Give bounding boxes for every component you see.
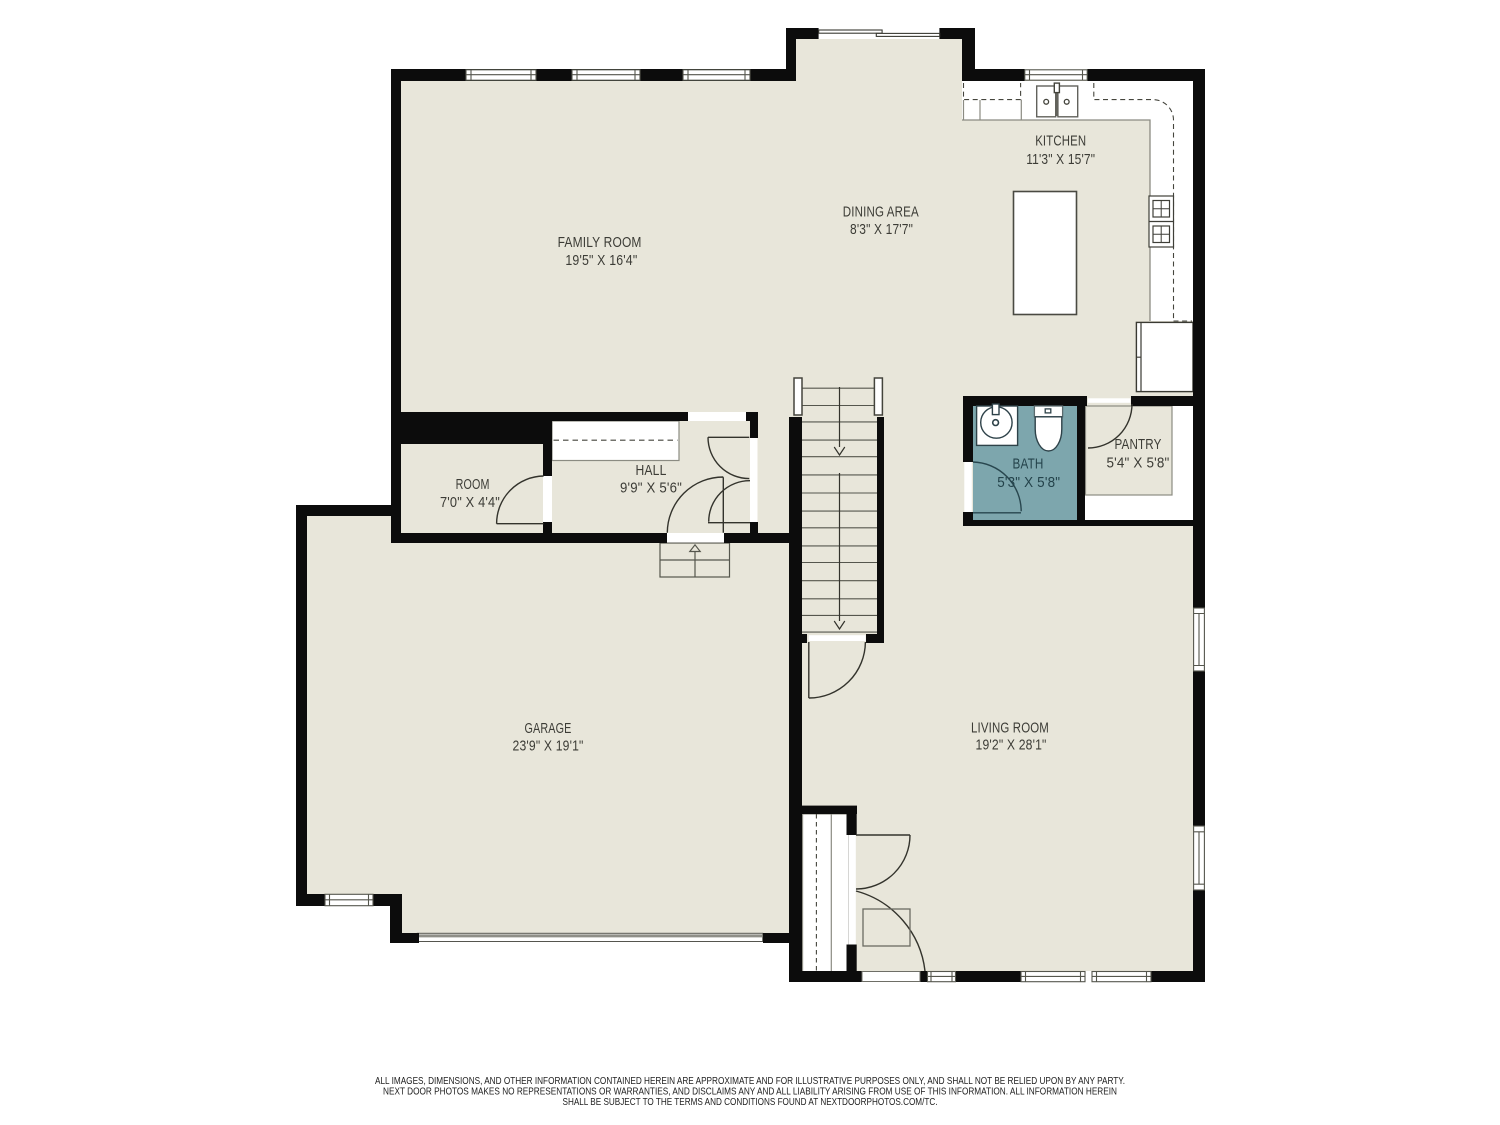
svg-text:11'3" X 15'7": 11'3" X 15'7" bbox=[1026, 151, 1095, 168]
svg-text:KITCHEN: KITCHEN bbox=[1035, 132, 1086, 149]
svg-text:LIVING ROOM: LIVING ROOM bbox=[971, 720, 1049, 737]
svg-text:DINING AREA: DINING AREA bbox=[843, 203, 919, 220]
svg-text:19'2" X 28'1": 19'2" X 28'1" bbox=[976, 736, 1047, 753]
svg-text:FAMILY ROOM: FAMILY ROOM bbox=[558, 234, 642, 251]
svg-text:5'3" X 5'8": 5'3" X 5'8" bbox=[997, 474, 1060, 491]
svg-text:NEXT DOOR PHOTOS MAKES NO REPR: NEXT DOOR PHOTOS MAKES NO REPRESENTATION… bbox=[383, 1086, 1117, 1097]
svg-text:23'9" X 19'1": 23'9" X 19'1" bbox=[513, 738, 584, 755]
svg-text:7'0" X 4'4": 7'0" X 4'4" bbox=[440, 494, 500, 511]
svg-text:5'4" X 5'8": 5'4" X 5'8" bbox=[1107, 455, 1170, 472]
svg-text:SHALL BE SUBJECT TO THE TERMS: SHALL BE SUBJECT TO THE TERMS AND CONDIT… bbox=[563, 1097, 938, 1108]
svg-text:ROOM: ROOM bbox=[456, 476, 490, 493]
svg-text:PANTRY: PANTRY bbox=[1115, 436, 1162, 453]
svg-text:BATH: BATH bbox=[1013, 455, 1044, 472]
svg-text:HALL: HALL bbox=[636, 462, 667, 479]
svg-text:8'3" X 17'7": 8'3" X 17'7" bbox=[850, 221, 913, 238]
svg-text:GARAGE: GARAGE bbox=[525, 720, 572, 737]
svg-text:9'9" X 5'6": 9'9" X 5'6" bbox=[620, 480, 682, 497]
svg-text:19'5" X 16'4": 19'5" X 16'4" bbox=[565, 252, 637, 269]
